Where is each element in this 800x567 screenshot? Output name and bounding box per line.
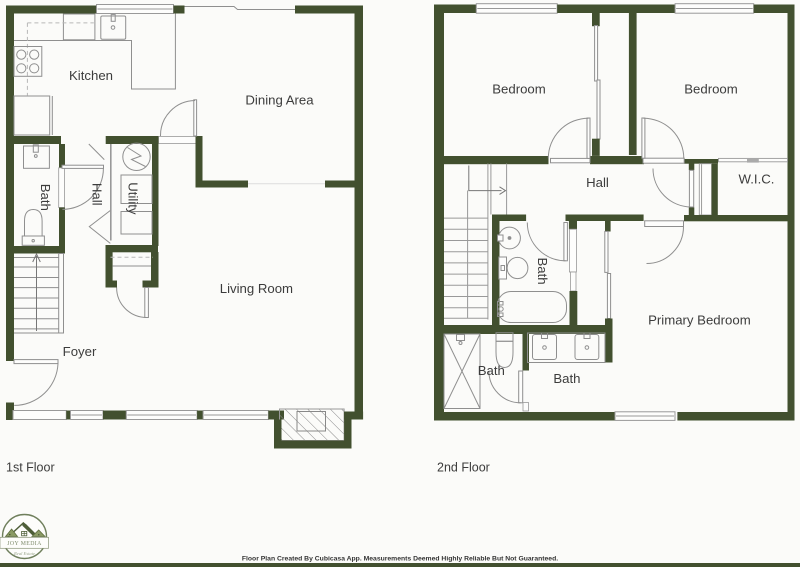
svg-text:Bedroom: Bedroom: [492, 82, 546, 97]
svg-text:1st Floor: 1st Floor: [6, 461, 55, 475]
svg-text:Bath: Bath: [478, 363, 505, 378]
svg-text:Dining Area: Dining Area: [245, 93, 314, 108]
svg-text:Hall: Hall: [586, 175, 609, 190]
svg-text:Bedroom: Bedroom: [684, 82, 738, 97]
svg-text:Foyer: Foyer: [63, 344, 97, 359]
svg-text:Living Room: Living Room: [220, 281, 293, 296]
svg-text:Kitchen: Kitchen: [69, 68, 113, 83]
svg-text:Hall: Hall: [89, 183, 104, 206]
svg-text:Bath: Bath: [535, 257, 550, 284]
svg-text:W.I.C.: W.I.C.: [739, 172, 775, 187]
svg-text:Utility: Utility: [125, 182, 140, 215]
svg-text:Real Estate: Real Estate: [13, 551, 35, 556]
svg-text:Bath: Bath: [553, 371, 580, 386]
svg-text:JOY MEDIA: JOY MEDIA: [7, 541, 42, 547]
svg-text:Floor Plan Created By Cubicasa: Floor Plan Created By Cubicasa App. Meas…: [242, 556, 558, 563]
svg-text:2nd Floor: 2nd Floor: [437, 461, 490, 475]
svg-text:Primary Bedroom: Primary Bedroom: [648, 312, 751, 327]
svg-text:Bath: Bath: [38, 184, 53, 211]
